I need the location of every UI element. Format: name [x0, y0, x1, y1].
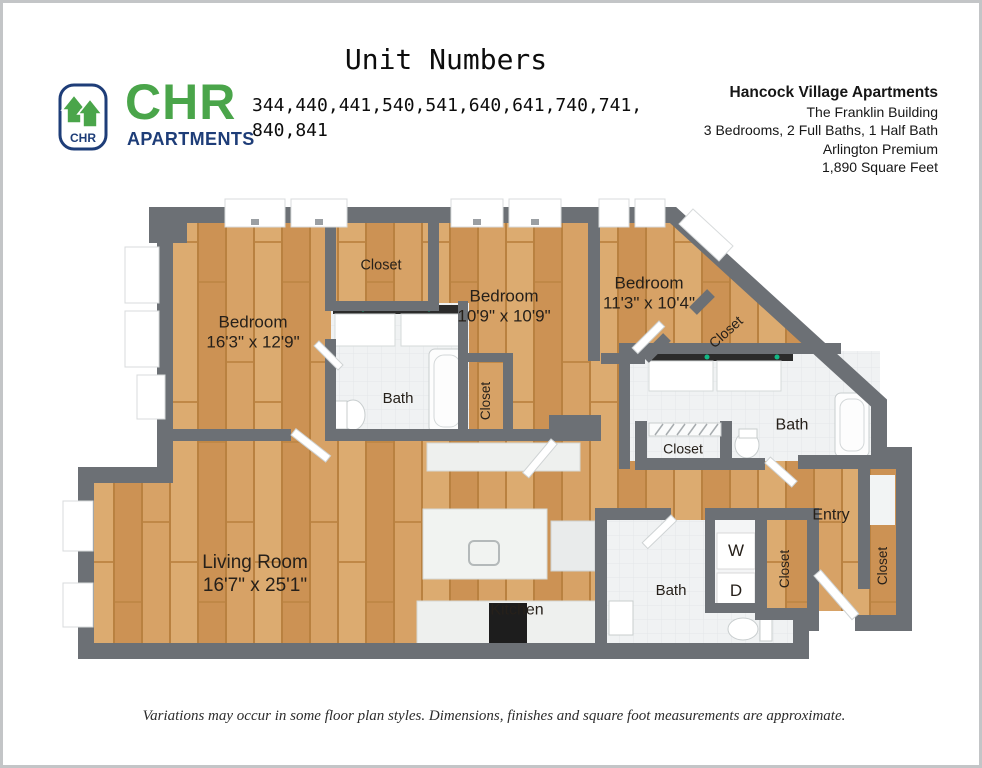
bedroom-2-label: Bedroom10'9" x 10'9" — [457, 287, 550, 328]
closet-hall-label: Closet — [663, 441, 703, 458]
floorplan: Bedroom16'3" x 12'9" Closet Bath Closet … — [3, 3, 982, 768]
closet-bedroom2-label: Closet — [478, 382, 494, 420]
bath-half-label: Bath — [656, 582, 687, 600]
washer-label: W — [728, 541, 744, 561]
living-room-label: Living Room16'7" x 25'1" — [202, 552, 308, 598]
bedroom-1-label: Bedroom16'3" x 12'9" — [206, 313, 299, 354]
bath-upper-label: Bath — [383, 390, 414, 408]
kitchen-label: Kitchen — [490, 600, 543, 619]
closet-entry-right-label: Closet — [875, 547, 891, 585]
bath-master-label: Bath — [776, 415, 809, 434]
entry-label: Entry — [812, 505, 849, 524]
bedroom-3-label: Bedroom11'3" x 10'4" — [603, 274, 695, 315]
closet-top-label: Closet — [360, 257, 401, 274]
fridge-icon — [551, 521, 595, 571]
dryer-label: D — [730, 581, 742, 601]
sliding-closet-door — [649, 423, 721, 436]
toilet-icon — [728, 618, 758, 640]
sink-icon — [609, 601, 633, 635]
disclaimer-text: Variations may occur in some floor plan … — [143, 708, 846, 725]
closet-entry-left-label: Closet — [777, 550, 793, 588]
floorplan-page: Unit Numbers CHR CHR APARTMENTS 344,440,… — [0, 0, 982, 768]
